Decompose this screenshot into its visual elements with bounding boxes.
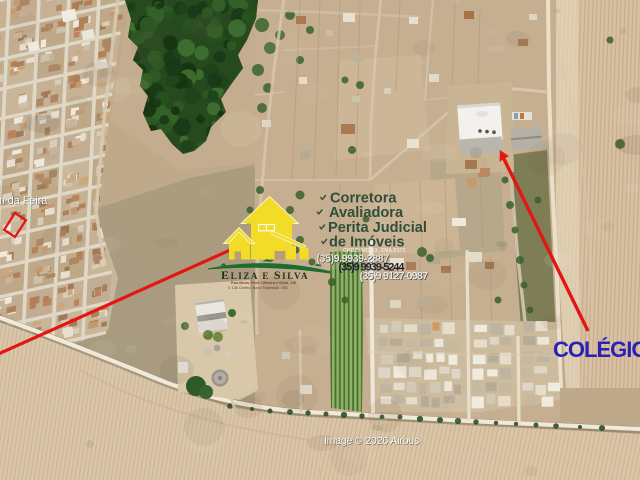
svg-text:V 136 Centro, Nova Travessia -: V 136 Centro, Nova Travessia - MG (228, 286, 288, 290)
svg-text:m da Feira: m da Feira (0, 195, 47, 207)
svg-text:ELIZA E SILVA: ELIZA E SILVA (221, 268, 309, 282)
svg-text:COLÉGIO: COLÉGIO (553, 337, 640, 362)
svg-text:Avaliadora: Avaliadora (329, 205, 404, 221)
svg-text:Rua Mons. Prof. Oliveira e Sil: Rua Mons. Prof. Oliveira e Silva, 136 (231, 281, 296, 285)
svg-text:Image © 2026 Airbus: Image © 2026 Airbus (324, 436, 419, 447)
svg-text:(35)9 9127-0987: (35)9 9127-0987 (360, 271, 429, 283)
